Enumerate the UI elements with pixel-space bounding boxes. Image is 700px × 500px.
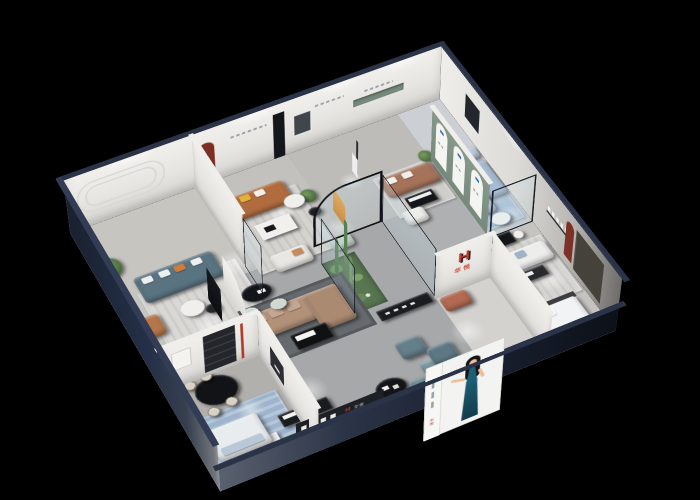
niche-dish xyxy=(275,364,280,375)
poster-side-panel: 华悦 xyxy=(424,362,443,441)
floor-plane: 华悦 H 华悦 xyxy=(70,99,616,491)
banner-logo-mark xyxy=(458,153,462,160)
poster-seal-text: 华悦 xyxy=(429,417,435,427)
sofa-cushion xyxy=(400,171,413,180)
sofa-cushion xyxy=(253,188,266,197)
showroom-render: 华悦 H 华悦 xyxy=(0,0,700,500)
banner-logo-mark xyxy=(440,129,444,136)
poster-vertical-text xyxy=(431,392,434,399)
poster-woman-dress-skirt xyxy=(461,376,480,421)
table-top-white xyxy=(295,330,317,342)
poster-lightbox: 华悦 xyxy=(423,337,505,442)
table-tray xyxy=(264,224,277,232)
poster-woman-arm-left xyxy=(450,378,466,383)
banner-text xyxy=(473,188,479,198)
poster-woman-arm-right xyxy=(478,368,485,377)
banner-text xyxy=(438,141,444,151)
doorway xyxy=(273,111,286,159)
poster-vertical-text xyxy=(431,401,434,408)
red-floor-lamp xyxy=(240,323,244,359)
framed-window xyxy=(464,91,481,136)
sofa-cushion xyxy=(173,263,187,272)
banner-text xyxy=(456,164,462,174)
wall-mirror xyxy=(292,109,312,137)
